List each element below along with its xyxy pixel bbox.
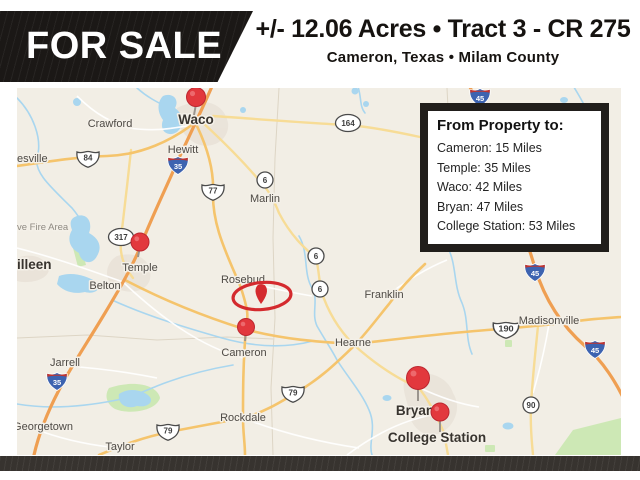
us-84-shield: 84 bbox=[77, 152, 99, 168]
label-killeen: illeen bbox=[17, 257, 52, 272]
svg-text:45: 45 bbox=[531, 269, 539, 278]
us-77-shield: 77 bbox=[202, 185, 224, 201]
listing-title: +/- 12.06 Acres • Tract 3 - CR 275 bbox=[248, 15, 638, 44]
label-franklin: Franklin bbox=[364, 289, 403, 301]
distance-college-station: College Station: 53 Miles bbox=[437, 217, 592, 237]
label-rockdale: Rockdale bbox=[220, 412, 266, 424]
for-sale-banner: FOR SALE bbox=[0, 11, 253, 82]
label-bryan: Bryan bbox=[396, 403, 434, 418]
svg-text:6: 6 bbox=[314, 252, 319, 261]
svg-text:35: 35 bbox=[174, 162, 182, 171]
distance-info-box: From Property to: Cameron: 15 Miles Temp… bbox=[420, 103, 609, 252]
label-georgetown: Georgetown bbox=[17, 421, 73, 433]
sh-6-shield-south: 6 bbox=[312, 281, 328, 297]
label-jarrell: Jarrell bbox=[50, 357, 80, 369]
svg-text:6: 6 bbox=[263, 176, 268, 185]
label-crawford: Crawford bbox=[88, 118, 133, 130]
property-pin-icon bbox=[255, 284, 267, 304]
svg-text:90: 90 bbox=[527, 401, 536, 410]
svg-text:84: 84 bbox=[84, 154, 93, 163]
bottom-bar bbox=[0, 456, 640, 471]
label-belton: Belton bbox=[89, 280, 120, 292]
label-waco: Waco bbox=[178, 112, 214, 127]
svg-text:79: 79 bbox=[164, 427, 173, 436]
label-hearne: Hearne bbox=[335, 337, 371, 349]
listing-subtitle: Cameron, Texas • Milam County bbox=[248, 49, 638, 66]
label-temple: Temple bbox=[122, 262, 157, 274]
svg-text:45: 45 bbox=[591, 346, 599, 355]
temple-marker-icon bbox=[131, 233, 149, 257]
sh-6-shield-north: 6 bbox=[308, 248, 324, 264]
us-79-shield-west: 79 bbox=[157, 425, 179, 441]
road-sh164 bbox=[213, 116, 420, 137]
label-fire-area: ve Fire Area bbox=[17, 222, 69, 233]
label-madisonville: Madisonville bbox=[519, 315, 580, 327]
sh-6-shield-marlin: 6 bbox=[257, 172, 273, 188]
distance-waco: Waco: 42 Miles bbox=[437, 178, 592, 198]
i-35-shield-south: 35 bbox=[47, 373, 67, 391]
label-cameron: Cameron bbox=[221, 347, 266, 359]
label-college-station: College Station bbox=[388, 430, 486, 445]
us-190-shield: 190 bbox=[493, 323, 519, 339]
info-box-title: From Property to: bbox=[437, 117, 592, 134]
header-text: +/- 12.06 Acres • Tract 3 - CR 275 Camer… bbox=[248, 15, 638, 66]
svg-text:79: 79 bbox=[289, 389, 298, 398]
svg-text:190: 190 bbox=[498, 324, 514, 333]
svg-text:45: 45 bbox=[476, 94, 484, 103]
sh-90-shield: 90 bbox=[523, 397, 539, 413]
label-marlin: Marlin bbox=[250, 193, 280, 205]
for-sale-label: FOR SALE bbox=[0, 11, 253, 82]
svg-text:6: 6 bbox=[318, 285, 323, 294]
distance-cameron: Cameron: 15 Miles bbox=[437, 139, 592, 159]
i-35-shield: 35 bbox=[168, 157, 188, 175]
label-gatesville: esville bbox=[17, 153, 48, 165]
svg-text:164: 164 bbox=[341, 119, 355, 128]
svg-text:77: 77 bbox=[209, 187, 218, 196]
sh-317-shield: 317 bbox=[109, 229, 134, 246]
flyer: FOR SALE +/- 12.06 Acres • Tract 3 - CR … bbox=[0, 0, 640, 480]
label-taylor: Taylor bbox=[105, 441, 135, 453]
svg-text:317: 317 bbox=[114, 233, 128, 242]
label-hewitt: Hewitt bbox=[168, 144, 199, 156]
distance-bryan: Bryan: 47 Miles bbox=[437, 198, 592, 218]
svg-text:35: 35 bbox=[53, 378, 61, 387]
i-45-shield-north: 45 bbox=[525, 264, 545, 282]
i-45-shield-south: 45 bbox=[585, 341, 605, 359]
distance-temple: Temple: 35 Miles bbox=[437, 159, 592, 179]
sh-164-shield: 164 bbox=[336, 115, 361, 132]
